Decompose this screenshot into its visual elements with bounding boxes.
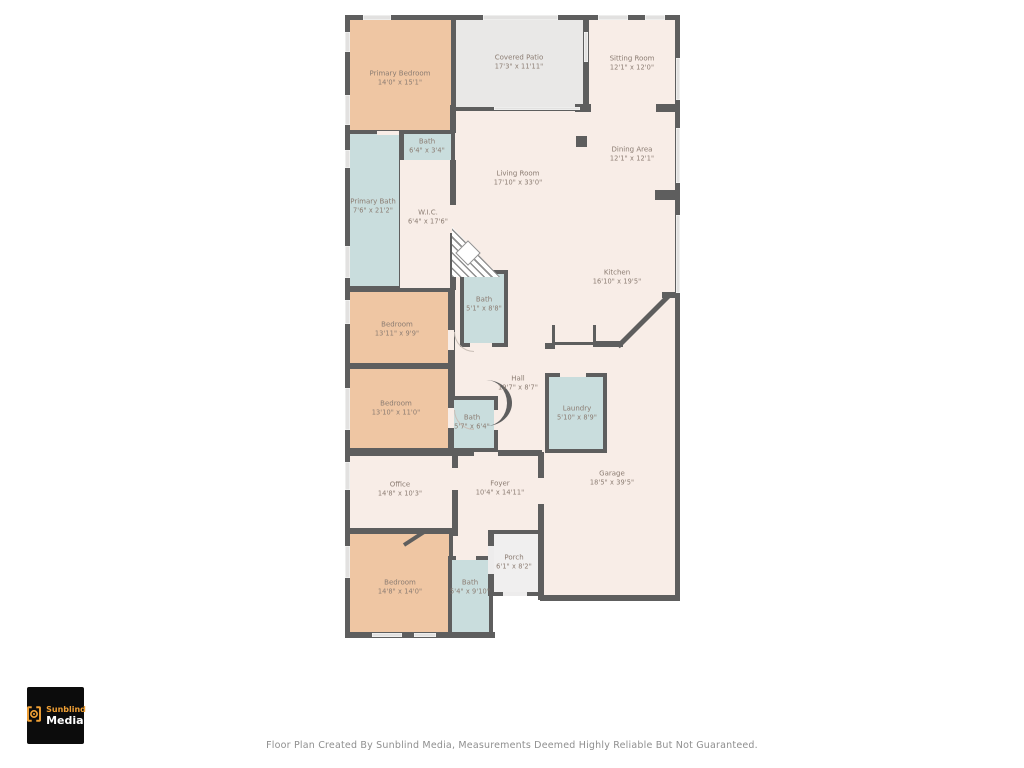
- window: [372, 633, 402, 637]
- room-dims: 7'6" x 21'2": [353, 207, 393, 215]
- room-dims: 13'11" x 9'9": [375, 330, 419, 338]
- room-label-bedroom-2: Bedroom13'11" x 9'9": [375, 321, 419, 340]
- room-dims: 12'1" x 12'1": [610, 155, 654, 163]
- window: [345, 388, 350, 430]
- room-label-wic: W.I.C.6'4" x 17'6": [408, 209, 448, 228]
- room-name: Office: [390, 481, 410, 489]
- room-name: Dining Area: [612, 146, 653, 154]
- room-name: Foyer: [490, 480, 509, 488]
- window: [676, 215, 680, 293]
- door-opening: [560, 373, 586, 377]
- door-opening: [456, 556, 476, 560]
- room-name: Bedroom: [381, 321, 413, 329]
- room-name: Bath: [476, 296, 492, 304]
- room-label-bath-guest: Bath5'4" x 9'10": [450, 579, 490, 598]
- room-dims: 16'10" x 19'5": [593, 278, 642, 286]
- window: [345, 246, 350, 278]
- patio-slider-window: [494, 107, 580, 110]
- room-name: Bedroom: [380, 400, 412, 408]
- room-dims: 18'5" x 39'5": [590, 479, 634, 487]
- room-name: Living Room: [497, 170, 540, 178]
- room-name: Hall: [511, 375, 524, 383]
- wall-patio-to-bath: [450, 105, 456, 133]
- window: [345, 95, 350, 125]
- porch-step-opening: [503, 592, 527, 596]
- window: [676, 128, 680, 183]
- window: [345, 546, 350, 578]
- room-dims: 14'8" x 14'0": [378, 588, 422, 596]
- room-dims: 17'3" x 11'11": [495, 63, 544, 71]
- window: [345, 150, 350, 168]
- room-name: Covered Patio: [495, 54, 544, 62]
- window: [345, 32, 350, 52]
- room-name: Porch: [504, 554, 523, 562]
- room-dims: 6'4" x 17'6": [408, 218, 448, 226]
- room-dims: 5'4" x 9'10": [450, 588, 490, 596]
- sunblind-media-logo: Sunblind Media: [27, 687, 84, 744]
- window: [345, 300, 350, 324]
- wall-sitting-stub-right: [656, 104, 680, 112]
- room-label-bedroom-4: Bedroom14'8" x 14'0": [378, 579, 422, 598]
- wall-foyer-top-right: [498, 450, 542, 456]
- room-dims: 6'1" x 8'2": [496, 563, 532, 571]
- room-name: W.I.C.: [418, 209, 438, 217]
- room-label-bath-hall-lower: Bath5'7" x 6'4": [454, 414, 490, 433]
- room-label-bedroom-3: Bedroom13'10" x 11'0": [372, 400, 421, 419]
- room-label-kitchen: Kitchen16'10" x 19'5": [593, 269, 642, 288]
- window: [483, 15, 558, 20]
- room-dims: 5'10" x 8'9": [557, 414, 597, 422]
- window: [598, 15, 628, 20]
- logo-brand-line1: Sunblind: [46, 706, 86, 714]
- wall-exterior-right: [675, 15, 680, 600]
- room-dims: 14'8" x 10'3": [378, 490, 422, 498]
- wall-office-bottom: [345, 528, 457, 534]
- wall-garage-bottom: [540, 595, 680, 601]
- room-label-bath-hall-upper: Bath5'1" x 8'8": [466, 296, 502, 315]
- room-dims: 10'4" x 14'11": [476, 489, 525, 497]
- room-name: Laundry: [563, 405, 592, 413]
- door-opening: [452, 468, 458, 490]
- window: [645, 15, 665, 20]
- window: [676, 58, 680, 100]
- room-label-laundry: Laundry5'10" x 8'9": [557, 405, 597, 424]
- room-name: Bath: [419, 138, 435, 146]
- room-dims: 17'10" x 33'0": [494, 179, 543, 187]
- room-label-hall: Hall19'7" x 8'7": [498, 375, 538, 394]
- room-name: Bath: [462, 579, 478, 587]
- camera-brackets-icon: [25, 705, 43, 727]
- wall-dining-kitchen-stub: [655, 190, 680, 200]
- room-name: Bath: [464, 414, 480, 422]
- room-dims: 5'7" x 6'4": [454, 423, 490, 431]
- wall-office-foyer: [452, 452, 458, 536]
- door-opening: [377, 131, 399, 135]
- room-dims: 6'4" x 3'4": [409, 147, 445, 155]
- room-dims: 14'0" x 15'1": [378, 79, 422, 87]
- floor-plan-page: Primary Bedroom14'0" x 15'1" Covered Pat…: [0, 0, 1024, 768]
- window: [363, 15, 391, 20]
- room-name: Primary Bedroom: [370, 70, 431, 78]
- room-label-primary-bedroom: Primary Bedroom14'0" x 15'1": [370, 70, 431, 89]
- room-label-office: Office14'8" x 10'3": [378, 481, 422, 500]
- room-label-primary-bath: Primary Bath7'6" x 21'2": [350, 198, 396, 217]
- room-label-dining-area: Dining Area12'1" x 12'1": [610, 146, 654, 165]
- room-dims: 12'1" x 12'0": [610, 64, 654, 72]
- room-label-sitting-room: Sitting Room12'1" x 12'0": [610, 55, 655, 74]
- room-name: Bedroom: [384, 579, 416, 587]
- window: [345, 462, 350, 490]
- front-door-opening: [488, 546, 494, 574]
- room-label-living-room: Living Room17'10" x 33'0": [494, 170, 543, 189]
- footer-disclaimer: Floor Plan Created By Sunblind Media, Me…: [0, 740, 1024, 751]
- room-dims: 5'1" x 8'8": [466, 305, 502, 313]
- logo-brand-line2: Media: [46, 715, 86, 726]
- window: [414, 633, 436, 637]
- room-label-covered-patio: Covered Patio17'3" x 11'11": [495, 54, 544, 73]
- room-name: Kitchen: [604, 269, 630, 277]
- logo-text: Sunblind Media: [46, 706, 86, 726]
- room-label-garage: Garage18'5" x 39'5": [590, 470, 634, 489]
- room-name: Sitting Room: [610, 55, 655, 63]
- room-label-porch: Porch6'1" x 8'2": [496, 554, 532, 573]
- door-opening: [538, 478, 544, 504]
- room-name: Garage: [599, 470, 625, 478]
- window: [584, 32, 588, 62]
- dining-column: [576, 136, 587, 147]
- room-name: Primary Bath: [350, 198, 396, 206]
- room-dims: 19'7" x 8'7": [498, 384, 538, 392]
- wall-bedroom-hall: [448, 288, 454, 454]
- room-label-foyer: Foyer10'4" x 14'11": [476, 480, 525, 499]
- wall-garage-left: [538, 452, 544, 600]
- room-label-bath-primary-hall: Bath6'4" x 3'4": [409, 138, 445, 157]
- kitchen-pantry-nook: [552, 325, 596, 345]
- room-dims: 13'10" x 11'0": [372, 409, 421, 417]
